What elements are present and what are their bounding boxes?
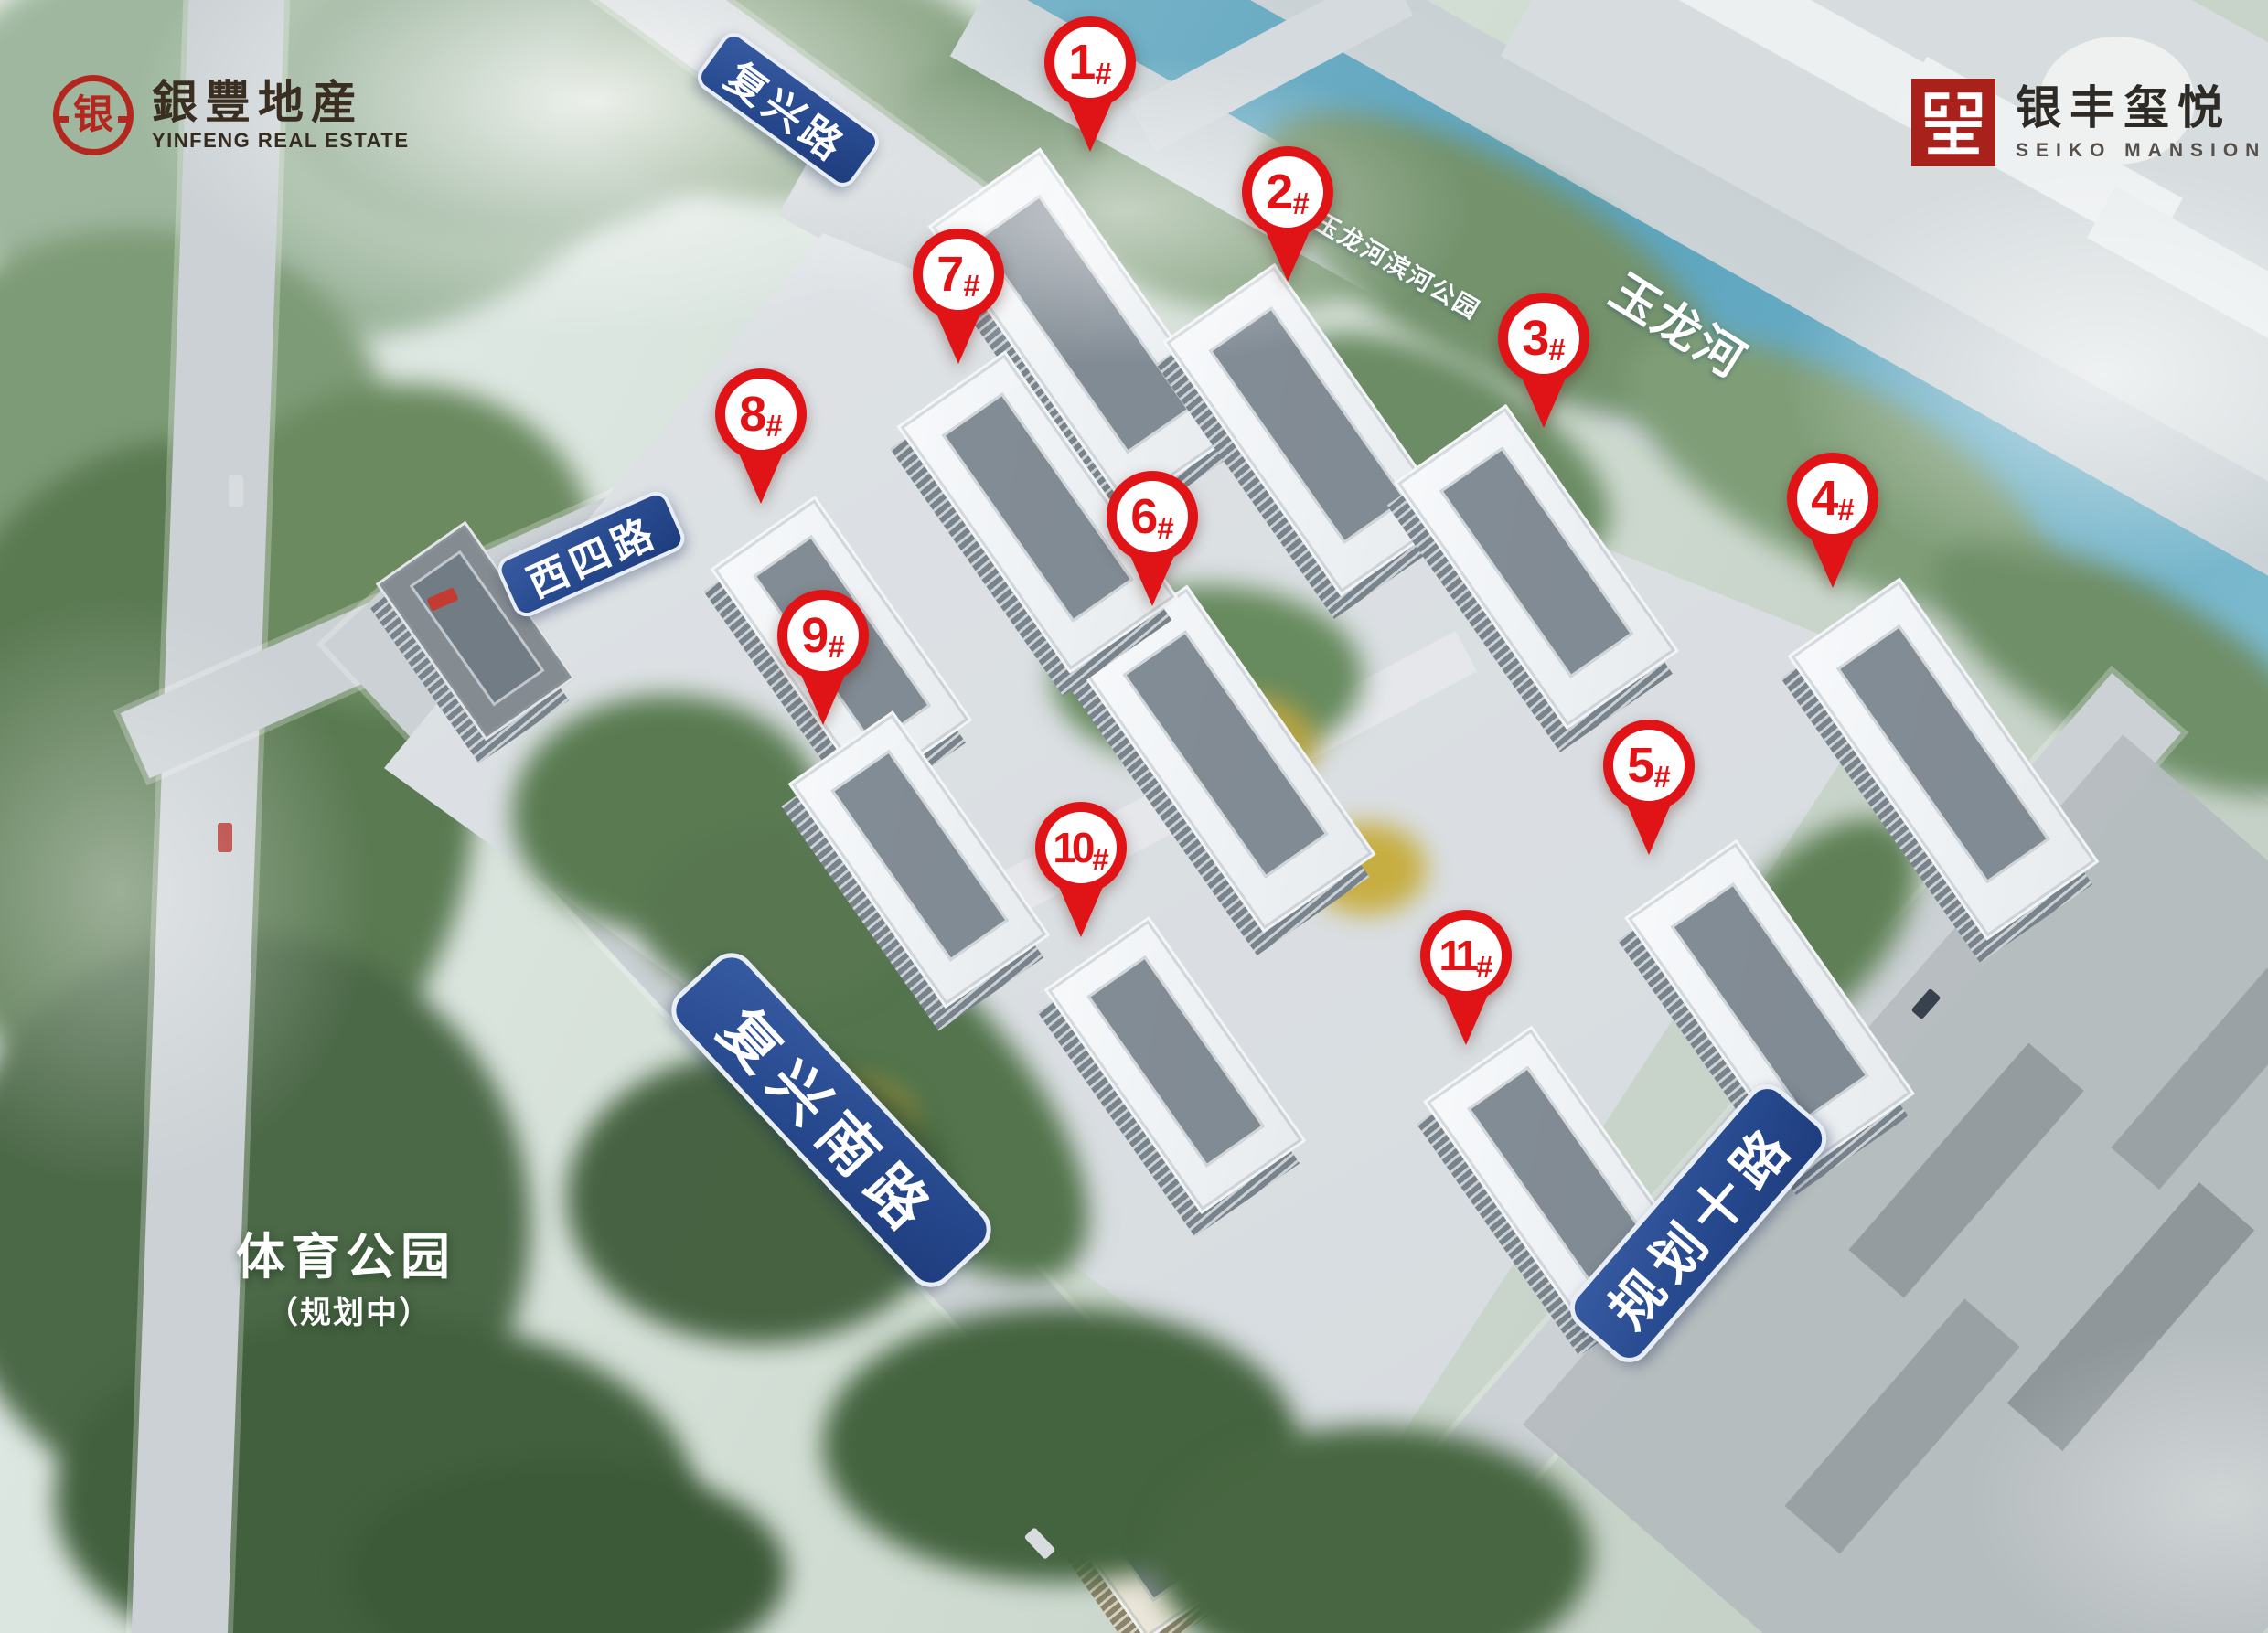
pin-circle: 11# [1420,910,1512,1001]
pin-circle: 9# [777,590,869,681]
sports-park-text: 体育公园 [236,1230,455,1285]
pin-circle: 3# [1498,293,1589,384]
pin-circle: 4# [1787,453,1878,544]
pin-number: 7 [936,250,961,299]
pin-hash: # [1653,762,1670,792]
pin-number: 4 [1811,474,1835,523]
pin-number: 10 [1053,827,1090,869]
building-marker-5[interactable]: 5# [1601,720,1696,857]
developer-name-cn: 銀豐地産 [152,79,410,127]
aerial-site-plan: 复兴路 西四路 复兴南路 规划十路 玉龙河 玉龙河滨河公园 体育公园 （规划中）… [0,0,2268,1633]
developer-logo: 银 銀豐地産 YINFENG REAL ESTATE [53,75,410,155]
pin-number: 2 [1266,167,1290,217]
pin-hash: # [1292,188,1309,219]
pin-number: 3 [1522,314,1546,363]
pin-circle: 2# [1242,146,1333,238]
project-name-cn: 银丰玺悦 [2016,84,2266,133]
building-marker-7[interactable]: 7# [911,229,1006,366]
car [218,823,232,852]
building-marker-10[interactable]: 10# [1033,802,1129,939]
pin-hash: # [1157,513,1173,543]
pin-circle: 1# [1044,16,1136,108]
developer-seal-character: 银 [73,95,113,135]
pin-number: 8 [739,390,764,439]
pin-hash: # [1548,335,1565,365]
developer-seal-icon: 银 [53,75,134,155]
developer-name-en: YINFENG REAL ESTATE [152,130,410,152]
sports-park-status-label: （规划中） [267,1287,432,1332]
building-marker-11[interactable]: 11# [1418,910,1514,1047]
pin-hash: # [1095,59,1111,89]
pin-hash: # [1837,495,1854,525]
car [229,475,243,507]
pin-circle: 6# [1107,471,1198,562]
building-marker-3[interactable]: 3# [1496,293,1591,430]
pin-number: 1 [1068,37,1093,87]
pin-circle: 5# [1603,720,1695,811]
sports-park-status-text: （规划中） [267,1296,432,1330]
pin-hash: # [828,632,844,662]
building-marker-8[interactable]: 8# [713,368,808,506]
pin-circle: 7# [913,229,1004,320]
pin-number: 6 [1130,492,1155,541]
pin-number: 9 [801,611,826,660]
project-seal-icon [1911,79,1995,166]
building-marker-1[interactable]: 1# [1043,16,1138,154]
pin-circle: 8# [715,368,807,460]
seal-glyph [1920,87,1987,158]
building-marker-4[interactable]: 4# [1785,453,1880,590]
building-marker-2[interactable]: 2# [1240,146,1335,283]
pin-hash: # [1476,952,1492,982]
pin-hash: # [1092,844,1108,874]
pin-number: 5 [1627,741,1652,790]
project-name-en: SEIKO MANSION [2016,140,2266,161]
pin-hash: # [765,411,782,441]
building-marker-6[interactable]: 6# [1105,471,1200,608]
sports-park-label: 体育公园 [236,1216,455,1288]
pin-hash: # [963,271,979,301]
pin-circle: 10# [1035,802,1127,893]
building-marker-9[interactable]: 9# [776,590,871,727]
project-logo: 银丰玺悦 SEIKO MANSION [1911,79,2266,166]
pin-number: 11 [1439,934,1475,977]
